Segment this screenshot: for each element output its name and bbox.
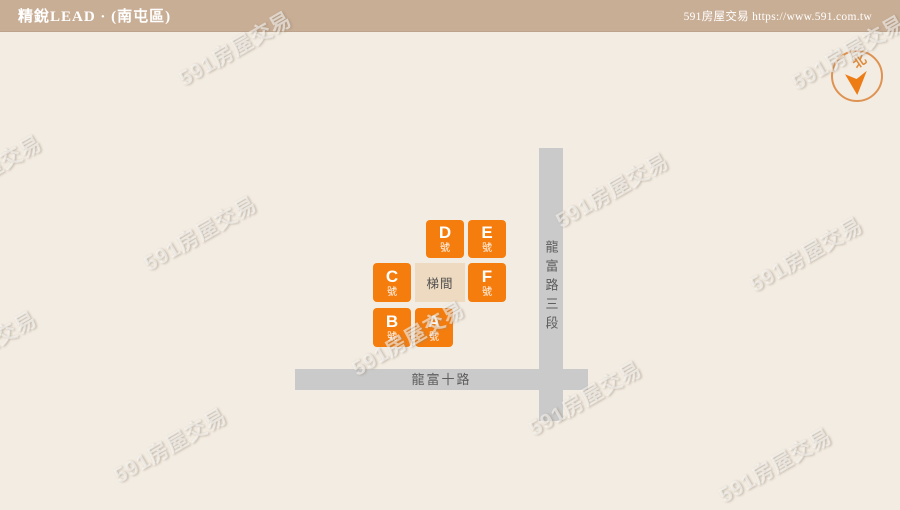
road-horizontal: 龍富十路: [295, 369, 588, 390]
building-suffix: 號: [440, 244, 450, 254]
compass-north-label: 北: [850, 52, 868, 70]
compass-arrow-icon: [843, 69, 873, 97]
building-block-b[interactable]: B 號: [373, 308, 411, 347]
stairwell-block: 梯間: [415, 263, 465, 302]
site-map: 龍富路三段 龍富十路 梯間 D 號 E 號 C 號 F 號 B 號 A: [0, 0, 900, 510]
building-letter: A: [428, 313, 440, 330]
building-block-d[interactable]: D 號: [426, 220, 464, 258]
header-bar: 精銳LEAD · (南屯區) 591房屋交易 https://www.591.c…: [0, 0, 900, 32]
building-letter: C: [386, 268, 398, 285]
building-block-c[interactable]: C 號: [373, 263, 411, 302]
building-block-e[interactable]: E 號: [468, 220, 506, 258]
stairwell-label: 梯間: [426, 273, 453, 292]
site-plan-page: 精銳LEAD · (南屯區) 591房屋交易 https://www.591.c…: [0, 0, 900, 510]
building-letter: B: [386, 313, 398, 330]
compass-icon: 北: [831, 50, 883, 102]
site-credit: 591房屋交易 https://www.591.com.tw: [684, 8, 872, 24]
road-name-horizontal: 龍富十路: [411, 373, 471, 386]
building-suffix: 號: [429, 333, 439, 343]
building-block-a[interactable]: A 號: [415, 308, 453, 347]
building-suffix: 號: [387, 288, 397, 298]
page-title: 精銳LEAD · (南屯區): [18, 5, 171, 26]
building-suffix: 號: [482, 244, 492, 254]
building-letter: F: [482, 268, 492, 285]
building-suffix: 號: [387, 333, 397, 343]
building-block-f[interactable]: F 號: [468, 263, 506, 302]
building-letter: D: [439, 224, 451, 241]
road-name-vertical: 龍富路三段: [545, 234, 558, 335]
building-letter: E: [481, 224, 492, 241]
building-suffix: 號: [482, 288, 492, 298]
